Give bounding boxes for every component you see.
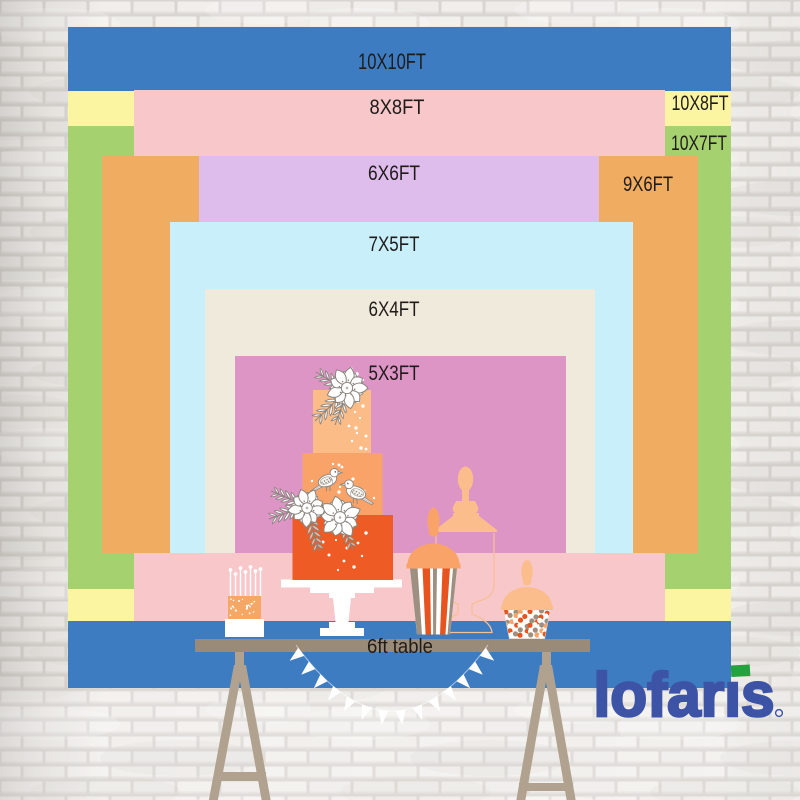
svg-text:10X8FT: 10X8FT [672,92,729,115]
svg-text:9X6FT: 9X6FT [623,173,673,196]
svg-text:5X3FT: 5X3FT [369,362,420,385]
svg-text:7X5FT: 7X5FT [369,233,420,256]
svg-text:6X4FT: 6X4FT [369,298,420,321]
svg-text:10X7FT: 10X7FT [671,132,727,155]
svg-text:6X6FT: 6X6FT [368,162,420,185]
svg-text:8X8FT: 8X8FT [370,96,425,119]
svg-text:6ft table: 6ft table [367,636,433,658]
svg-text:10X10FT: 10X10FT [358,49,426,74]
